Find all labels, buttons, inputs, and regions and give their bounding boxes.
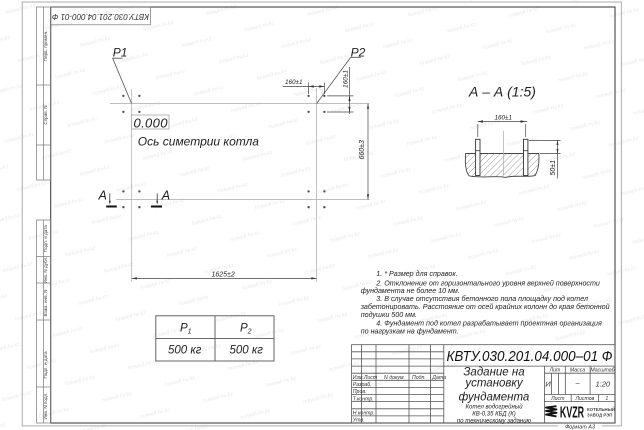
svg-text:hotwell-hv.kz: hotwell-hv.kz (278, 295, 310, 308)
svg-text:hotwell-hv.kz: hotwell-hv.kz (319, 53, 351, 66)
svg-text:1625±2: 1625±2 (212, 271, 235, 278)
svg-text:hotwell-hv.kz: hotwell-hv.kz (356, 70, 388, 83)
svg-text:hotwell-hv.kz: hotwell-hv.kz (419, 183, 451, 196)
svg-text:hotwell-hv.kz: hotwell-hv.kz (545, 22, 577, 35)
svg-text:hotwell-hv.kz: hotwell-hv.kz (355, 199, 387, 212)
svg-text:Изм.Лист: Изм.Лист (353, 375, 378, 381)
svg-text:hotwell-hv.kz: hotwell-hv.kz (506, 264, 538, 277)
svg-text:160±1: 160±1 (495, 115, 512, 122)
svg-text:hotwell-hv.kz: hotwell-hv.kz (531, 232, 563, 245)
svg-text:ЗАВОД РЭП: ЗАВОД РЭП (587, 412, 612, 417)
svg-text:hotwell-hv.kz: hotwell-hv.kz (2, 261, 34, 274)
svg-text:hotwell-hv.kz: hotwell-hv.kz (128, 230, 160, 243)
svg-text:hotwell-hv.kz: hotwell-hv.kz (16, 180, 48, 193)
svg-text:hotwell-hv.kz: hotwell-hv.kz (621, 55, 644, 68)
svg-text:hotwell-hv.kz: hotwell-hv.kz (4, 132, 36, 145)
svg-text:50±1: 50±1 (550, 160, 557, 176)
svg-text:Дата: Дата (431, 375, 446, 381)
svg-text:КВТУ.030.201.04.000–01 Ф: КВТУ.030.201.04.000–01 Ф (447, 349, 613, 365)
svg-text:N докум.: N докум. (384, 375, 405, 381)
svg-text:hotwell-hv.kz: hotwell-hv.kz (608, 136, 640, 149)
svg-text:Масса: Масса (570, 367, 585, 373)
svg-text:hotwell-hv.kz: hotwell-hv.kz (52, 326, 84, 339)
svg-text:hotwell-hv.kz: hotwell-hv.kz (177, 424, 209, 430)
svg-text:по нагрузкам на фундамент.: по нагрузкам на фундамент. (361, 328, 459, 336)
svg-text:1:20: 1:20 (595, 379, 610, 388)
svg-text:hotwell-hv.kz: hotwell-hv.kz (0, 293, 9, 306)
svg-text:hotwell-hv.kz: hotwell-hv.kz (229, 230, 261, 243)
svg-text:hotwell-hv.kz: hotwell-hv.kz (280, 166, 312, 179)
svg-text:Справ. N: Справ. N (43, 105, 48, 124)
svg-text:hotwell-hv.kz: hotwell-hv.kz (392, 344, 424, 357)
svg-text:фундамента: фундамента (459, 392, 530, 404)
svg-text:Подп. и дата: Подп. и дата (43, 351, 48, 379)
svg-text:hotwell-hv.kz: hotwell-hv.kz (14, 310, 46, 323)
svg-text:hotwell-hv.kz: hotwell-hv.kz (155, 68, 187, 81)
svg-text:hotwell-hv.kz: hotwell-hv.kz (104, 133, 136, 146)
svg-text:hotwell-hv.kz: hotwell-hv.kz (254, 198, 286, 211)
svg-text:hotwell-hv.kz: hotwell-hv.kz (520, 54, 552, 67)
svg-text:hotwell-hv.kz: hotwell-hv.kz (606, 265, 638, 278)
svg-text:hotwell-hv.kz: hotwell-hv.kz (193, 85, 225, 98)
svg-text:hotwell-hv.kz: hotwell-hv.kz (633, 104, 644, 117)
svg-text:hotwell-hv.kz: hotwell-hv.kz (241, 279, 273, 292)
svg-text:Масштаб: Масштаб (590, 367, 615, 373)
svg-text:подушки 500 мм.: подушки 500 мм. (361, 311, 417, 319)
svg-text:фундамента не более 10 мм.: фундамента не более 10 мм. (361, 287, 460, 295)
svg-text:hotwell-hv.kz: hotwell-hv.kz (167, 117, 199, 130)
svg-text:hotwell-hv.kz: hotwell-hv.kz (0, 35, 11, 48)
svg-text:hotwell-hv.kz: hotwell-hv.kz (5, 3, 37, 16)
svg-text:hotwell-hv.kz: hotwell-hv.kz (80, 36, 112, 49)
svg-text:КОТЕЛЬНЫЙ: КОТЕЛЬНЫЙ (587, 407, 615, 412)
svg-text:hotwell-hv.kz: hotwell-hv.kz (266, 376, 298, 389)
svg-text:hotwell-hv.kz: hotwell-hv.kz (596, 87, 628, 100)
svg-text:hotwell-hv.kz: hotwell-hv.kz (218, 53, 250, 66)
svg-text:И: И (545, 379, 551, 388)
svg-text:hotwell-hv.kz: hotwell-hv.kz (431, 102, 463, 115)
svg-text:hotwell-hv.kz: hotwell-hv.kz (457, 70, 489, 83)
svg-text:hotwell-hv.kz: hotwell-hv.kz (0, 164, 9, 177)
svg-text:–: – (575, 379, 581, 388)
svg-text:Н.контр.: Н.контр. (353, 411, 375, 417)
svg-text:hotwell-hv.kz: hotwell-hv.kz (304, 263, 336, 276)
svg-text:hotwell-hv.kz: hotwell-hv.kz (594, 217, 626, 230)
svg-text:hotwell-hv.kz: hotwell-hv.kz (281, 37, 313, 50)
svg-text:установку: установку (464, 378, 524, 390)
svg-text:hotwell-hv.kz: hotwell-hv.kz (115, 310, 147, 323)
svg-text:забетонировать. Расстояние от: забетонировать. Расстояние от осей крайн… (360, 303, 610, 311)
svg-text:hotwell-hv.kz: hotwell-hv.kz (181, 36, 213, 49)
svg-text:КВ-0,35 КБД (К): КВ-0,35 КБД (К) (472, 411, 516, 417)
svg-text:hotwell-hv.kz: hotwell-hv.kz (329, 360, 361, 373)
svg-text:hotwell-hv.kz: hotwell-hv.kz (53, 197, 85, 210)
svg-text:hotwell-hv.kz: hotwell-hv.kz (368, 118, 400, 131)
svg-text:hotwell-hv.kz: hotwell-hv.kz (169, 0, 201, 1)
svg-text:hotwell-hv.kz: hotwell-hv.kz (142, 149, 174, 162)
svg-text:hotwell-hv.kz: hotwell-hv.kz (0, 213, 22, 226)
svg-text:hotwell-hv.kz: hotwell-hv.kz (206, 4, 238, 17)
svg-text:hotwell-hv.kz: hotwell-hv.kz (244, 20, 276, 33)
svg-text:Ось симетрии котла: Ось симетрии котла (138, 134, 259, 148)
svg-text:hotwell-hv.kz: hotwell-hv.kz (368, 247, 400, 260)
svg-text:hotwell-hv.kz: hotwell-hv.kz (317, 311, 349, 324)
svg-text:hotwell-hv.kz: hotwell-hv.kz (242, 150, 274, 163)
svg-text:hotwell-hv.kz: hotwell-hv.kz (394, 86, 426, 99)
svg-text:hotwell-hv.kz: hotwell-hv.kz (0, 83, 23, 96)
svg-text:hotwell-hv.kz: hotwell-hv.kz (382, 37, 414, 50)
svg-text:hotwell-hv.kz: hotwell-hv.kz (230, 101, 262, 114)
svg-text:hotwell-hv.kz: hotwell-hv.kz (41, 148, 73, 161)
svg-text:hotwell-hv.kz: hotwell-hv.kz (268, 117, 300, 130)
svg-text:hotwell-hv.kz: hotwell-hv.kz (0, 422, 7, 430)
svg-text:hotwell-hv.kz: hotwell-hv.kz (431, 231, 463, 244)
svg-text:Утв.: Утв. (353, 418, 365, 424)
svg-text:Инв. N дубл.: Инв. N дубл. (43, 257, 48, 284)
svg-text:hotwell-hv.kz: hotwell-hv.kz (533, 103, 565, 116)
svg-text:A: A (161, 189, 170, 203)
svg-text:hotwell-hv.kz: hotwell-hv.kz (92, 84, 124, 97)
svg-text:hotwell-hv.kz: hotwell-hv.kz (1, 390, 33, 403)
svg-text:hotwell-hv.kz: hotwell-hv.kz (569, 249, 601, 262)
svg-text:hotwell-hv.kz: hotwell-hv.kz (470, 0, 502, 3)
svg-text:КВТУ.030.201.04.000-01 Ф: КВТУ.030.201.04.000-01 Ф (51, 12, 149, 21)
svg-text:hotwell-hv.kz: hotwell-hv.kz (130, 100, 162, 113)
svg-text:hotwell-hv.kz: hotwell-hv.kz (329, 231, 361, 244)
svg-text:Подп. и дата: Подп. и дата (43, 225, 48, 253)
svg-text:hotwell-hv.kz: hotwell-hv.kz (76, 423, 108, 430)
svg-text:1. * Размер для справок.: 1. * Размер для справок. (376, 270, 457, 278)
svg-text:P1: P1 (113, 46, 128, 60)
svg-text:P1: P1 (180, 323, 192, 336)
svg-text:hotwell-hv.kz: hotwell-hv.kz (582, 168, 614, 181)
svg-text:hotwell-hv.kz: hotwell-hv.kz (393, 215, 425, 228)
svg-text:hotwell-hv.kz: hotwell-hv.kz (494, 216, 526, 229)
svg-text:hotwell-hv.kz: hotwell-hv.kz (317, 182, 349, 195)
svg-text:Листов: Листов (574, 396, 594, 402)
svg-text:hotwell-hv.kz: hotwell-hv.kz (269, 0, 301, 2)
svg-text:hotwell-hv.kz: hotwell-hv.kz (482, 38, 514, 51)
svg-text:hotwell-hv.kz: hotwell-hv.kz (178, 294, 210, 307)
svg-text:hotwell-hv.kz: hotwell-hv.kz (79, 165, 111, 178)
svg-text:hotwell-hv.kz: hotwell-hv.kz (507, 135, 539, 148)
svg-text:660±3: 660±3 (359, 140, 366, 160)
svg-text:hotwell-hv.kz: hotwell-hv.kz (305, 134, 337, 147)
svg-text:по техническому заданию: по техническому заданию (457, 418, 532, 424)
svg-text:hotwell-hv.kz: hotwell-hv.kz (164, 375, 196, 388)
svg-text:Формат А3: Формат А3 (565, 424, 596, 430)
svg-text:hotwell-hv.kz: hotwell-hv.kz (555, 329, 587, 342)
svg-text:hotwell-hv.kz: hotwell-hv.kz (64, 374, 96, 387)
svg-text:hotwell-hv.kz: hotwell-hv.kz (609, 7, 641, 20)
svg-text:hotwell-hv.kz: hotwell-hv.kz (0, 342, 21, 355)
svg-text:Лит: Лит (549, 367, 561, 373)
svg-text:hotwell-hv.kz: hotwell-hv.kz (127, 359, 159, 372)
svg-text:hotwell-hv.kz: hotwell-hv.kz (557, 200, 589, 213)
svg-text:hotwell-hv.kz: hotwell-hv.kz (179, 165, 211, 178)
svg-text:hotwell-hv.kz: hotwell-hv.kz (55, 68, 87, 81)
svg-text:А – А (1:5): А – А (1:5) (468, 84, 536, 100)
svg-text:Т.контр.: Т.контр. (353, 396, 374, 402)
svg-text:hotwell-hv.kz: hotwell-hv.kz (67, 116, 99, 129)
svg-text:hotwell-hv.kz: hotwell-hv.kz (65, 245, 97, 258)
svg-text:Котел водогрейный: Котел водогрейный (465, 404, 523, 411)
svg-text:hotwell-hv.kz: hotwell-hv.kz (266, 247, 298, 260)
svg-text:Инв. N подл.: Инв. N подл. (43, 392, 48, 419)
svg-text:hotwell-hv.kz: hotwell-hv.kz (344, 21, 376, 34)
svg-text:160±1: 160±1 (343, 70, 350, 88)
svg-text:hotwell-hv.kz: hotwell-hv.kz (584, 39, 616, 52)
svg-text:hotwell-hv.kz: hotwell-hv.kz (519, 184, 551, 197)
svg-text:hotwell-hv.kz: hotwell-hv.kz (89, 342, 121, 355)
svg-text:4. Фундамент под котел разраба: 4. Фундамент под котел разрабатывает про… (376, 320, 602, 328)
svg-text:hotwell-hv.kz: hotwell-hv.kz (292, 214, 324, 227)
svg-text:hotwell-hv.kz: hotwell-hv.kz (632, 233, 644, 246)
svg-text:1: 1 (605, 396, 608, 402)
svg-text:hotwell-hv.kz: hotwell-hv.kz (570, 119, 602, 132)
svg-text:hotwell-hv.kz: hotwell-hv.kz (468, 248, 500, 261)
svg-text:hotwell-hv.kz: hotwell-hv.kz (217, 182, 249, 195)
svg-text:hotwell-hv.kz: hotwell-hv.kz (380, 167, 412, 180)
svg-text:Перв. примен.: Перв. примен. (43, 31, 48, 62)
svg-text:hotwell-hv.kz: hotwell-hv.kz (291, 344, 323, 357)
svg-text:Разраб.: Разраб. (353, 382, 372, 388)
svg-text:hotwell-hv.kz: hotwell-hv.kz (419, 54, 451, 67)
svg-text:Лист: Лист (550, 396, 565, 402)
svg-text:Подп.: Подп. (412, 375, 426, 381)
svg-text:hotwell-hv.kz: hotwell-hv.kz (240, 408, 272, 421)
svg-text:hotwell-hv.kz: hotwell-hv.kz (620, 184, 644, 197)
svg-text:hotwell-hv.kz: hotwell-hv.kz (139, 407, 171, 420)
svg-text:hotwell-hv.kz: hotwell-hv.kz (456, 199, 488, 212)
svg-text:hotwell-hv.kz: hotwell-hv.kz (203, 391, 235, 404)
svg-text:A: A (98, 189, 107, 203)
svg-text:Пров.: Пров. (353, 389, 367, 395)
svg-text:hotwell-hv.kz: hotwell-hv.kz (166, 246, 198, 259)
svg-text:hotwell-hv.kz: hotwell-hv.kz (140, 278, 172, 291)
svg-text:hotwell-hv.kz: hotwell-hv.kz (91, 213, 123, 226)
svg-text:500 кг: 500 кг (230, 344, 264, 356)
svg-text:hotwell-hv.kz: hotwell-hv.kz (191, 214, 223, 227)
svg-text:Задание на: Задание на (463, 366, 524, 378)
svg-text:hotwell-hv.kz: hotwell-hv.kz (303, 392, 335, 405)
svg-text:hotwell-hv.kz: hotwell-hv.kz (508, 6, 540, 19)
svg-text:0.000: 0.000 (134, 115, 169, 130)
svg-text:hotwell-hv.kz: hotwell-hv.kz (103, 262, 135, 275)
svg-text:hotwell-hv.kz: hotwell-hv.kz (445, 22, 477, 35)
svg-text:hotwell-hv.kz: hotwell-hv.kz (618, 314, 644, 327)
svg-text:hotwell-hv.kz: hotwell-hv.kz (256, 69, 288, 82)
svg-text:hotwell-hv.kz: hotwell-hv.kz (406, 134, 438, 147)
svg-text:hotwell-hv.kz: hotwell-hv.kz (77, 294, 109, 307)
svg-text:500 кг: 500 кг (168, 344, 202, 356)
svg-text:hotwell-hv.kz: hotwell-hv.kz (455, 328, 487, 341)
svg-text:P2: P2 (240, 323, 252, 336)
svg-text:160±1: 160±1 (285, 79, 302, 86)
svg-text:hotwell-hv.kz: hotwell-hv.kz (101, 391, 133, 404)
svg-text:KVZR: KVZR (560, 404, 584, 421)
svg-text:Взам. инв. N: Взам. инв. N (43, 290, 48, 317)
svg-text:hotwell-hv.kz: hotwell-hv.kz (558, 71, 590, 84)
